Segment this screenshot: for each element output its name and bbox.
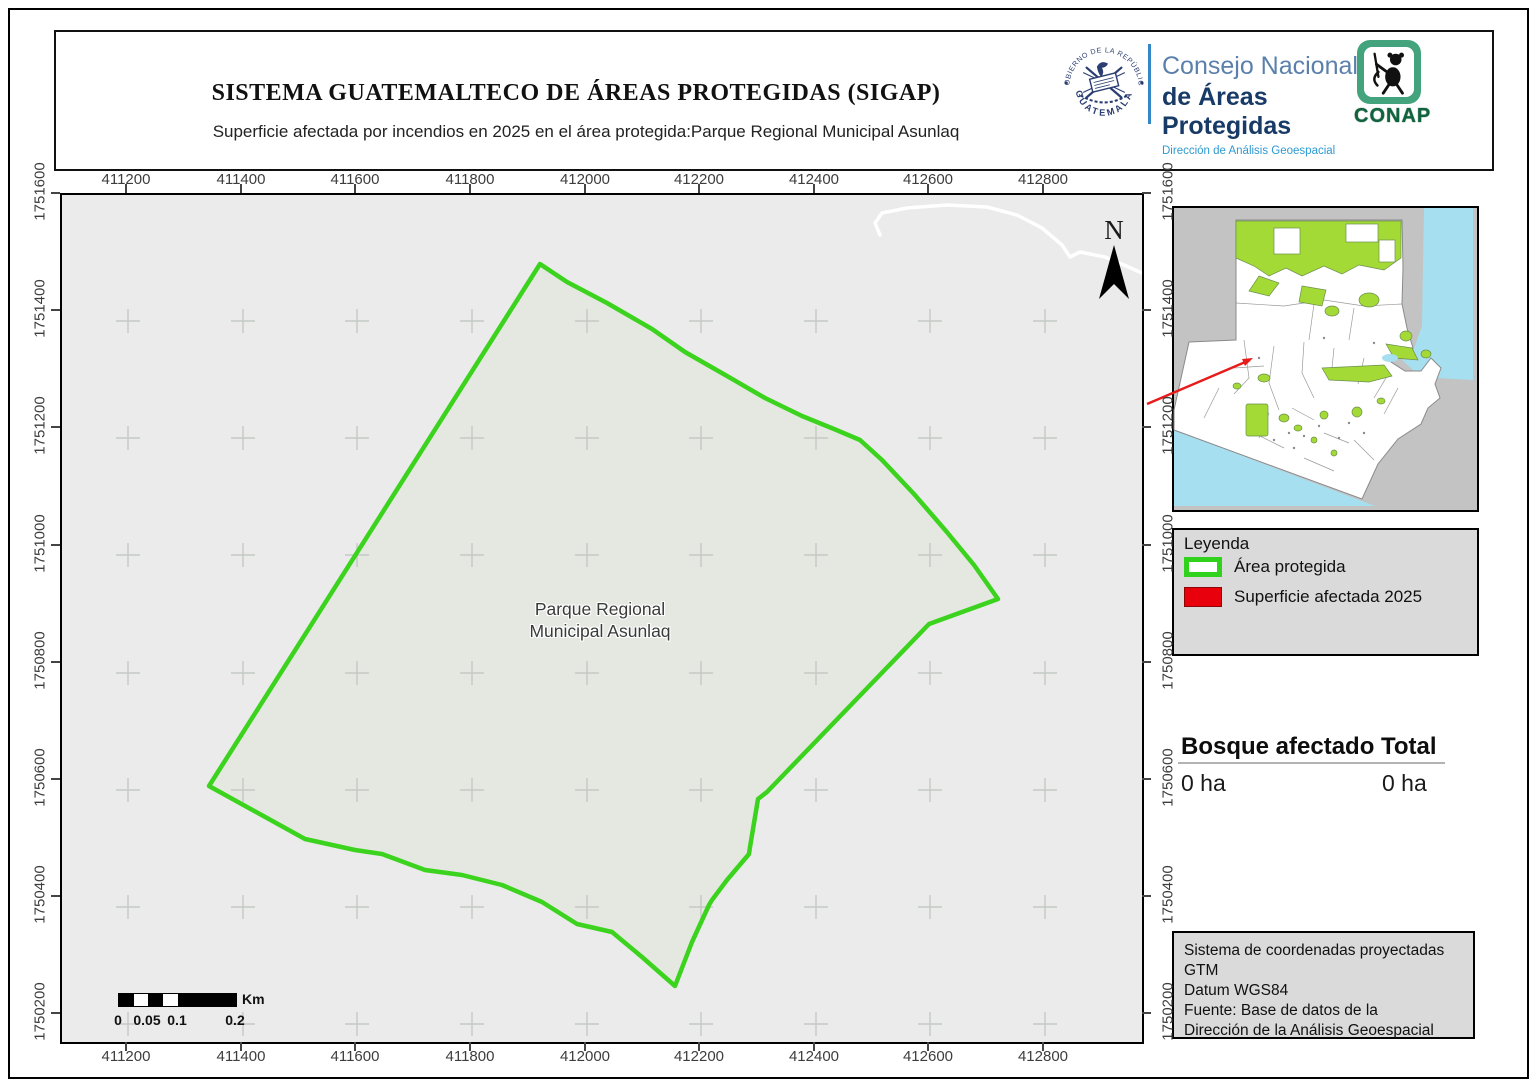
crs-line: GTM (1184, 961, 1463, 981)
page-subtitle: Superficie afectada por incendios en 202… (116, 122, 1056, 142)
overview-map-canvas (1174, 208, 1473, 506)
y-axis-label-left: 1750600 (32, 733, 49, 823)
axis-tick (1142, 1012, 1151, 1014)
conap-direction-line: Dirección de Análisis Geoespacial (1162, 145, 1382, 157)
scale-bar-unit: Km (242, 991, 265, 1007)
axis-tick (584, 184, 586, 193)
y-axis-label-right: 1751200 (1160, 381, 1177, 471)
stats-divider (1178, 762, 1445, 764)
y-axis-label-left: 1750800 (32, 616, 49, 706)
axis-tick (354, 1042, 356, 1051)
axis-tick (1142, 895, 1151, 897)
y-axis-label-right: 1750800 (1160, 616, 1177, 706)
y-axis-label-left: 1751200 (32, 381, 49, 471)
axis-tick (584, 1042, 586, 1051)
axis-tick (51, 661, 60, 663)
axis-tick (1142, 778, 1151, 780)
government-seal-icon: GOBIERNO DE LA REPÚBLICA GUATEMALA (1058, 36, 1150, 128)
stats-value-total: 0 ha (1382, 770, 1427, 797)
crs-line: Sistema de coordenadas proyectadas (1184, 941, 1463, 961)
axis-tick (698, 184, 700, 193)
conap-logo-text: CONAP (1354, 105, 1424, 128)
lake-izabal (1382, 354, 1398, 362)
y-axis-label-left: 1750200 (32, 967, 49, 1057)
axis-tick (125, 184, 127, 193)
scale-bar-label: 0.1 (157, 1012, 197, 1028)
stream-line (875, 205, 1142, 273)
conap-name-line1: Consejo Nacional (1162, 52, 1382, 81)
axis-tick (813, 1042, 815, 1051)
axis-tick (354, 184, 356, 193)
page-title: SISTEMA GUATEMALTECO DE ÁREAS PROTEGIDAS… (116, 80, 1036, 107)
scale-bar-label: 0.2 (215, 1012, 255, 1028)
north-label: N (1104, 215, 1124, 245)
axis-tick (240, 1042, 242, 1051)
crs-line: Dirección de la Análisis Geoespacial (1184, 1021, 1463, 1041)
conap-monkey-icon (1357, 40, 1421, 104)
axis-tick (51, 192, 60, 194)
y-axis-label-right: 1751600 (1160, 147, 1177, 237)
legend-label: Superficie afectada 2025 (1234, 587, 1422, 607)
y-axis-label-right: 1750600 (1160, 733, 1177, 823)
y-axis-label-right: 1750200 (1160, 967, 1177, 1057)
axis-tick (1142, 192, 1151, 194)
axis-tick (927, 1042, 929, 1051)
svg-text:GUATEMALA: GUATEMALA (1073, 89, 1134, 118)
conap-name-line2: de Áreas Protegidas (1162, 83, 1382, 141)
y-axis-label-left: 1751000 (32, 499, 49, 589)
overview-map (1172, 206, 1479, 512)
axis-tick (51, 309, 60, 311)
legend-swatch-protected (1184, 557, 1222, 577)
axis-tick (1142, 661, 1151, 663)
legend-box: Leyenda Área protegida Superficie afecta… (1172, 528, 1479, 656)
stats-value-bosque: 0 ha (1181, 770, 1226, 797)
map-report-page: SISTEMA GUATEMALTECO DE ÁREAS PROTEGIDAS… (0, 0, 1536, 1086)
y-axis-label-right: 1751400 (1160, 264, 1177, 354)
axis-tick (1042, 1042, 1044, 1051)
axis-tick (813, 184, 815, 193)
axis-tick (1142, 544, 1151, 546)
stats-header-total: Total (1381, 733, 1437, 761)
area-label: Parque Regional Municipal Asunlaq (500, 598, 700, 642)
y-axis-label-left: 1751600 (32, 147, 49, 237)
axis-tick (927, 184, 929, 193)
axis-tick (469, 1042, 471, 1051)
stats-header-bosque: Bosque afectado (1181, 733, 1374, 761)
crs-line: Fuente: Base de datos de la (1184, 1001, 1463, 1021)
conap-logo: CONAP (1354, 40, 1424, 128)
axis-tick (698, 1042, 700, 1051)
crs-line: Datum WGS84 (1184, 981, 1463, 1001)
axis-tick (51, 778, 60, 780)
axis-tick (1142, 426, 1151, 428)
y-axis-label-right: 1750400 (1160, 850, 1177, 940)
legend-title: Leyenda (1184, 534, 1249, 554)
y-axis-label-left: 1750400 (32, 850, 49, 940)
axis-tick (51, 426, 60, 428)
y-axis-label-right: 1751000 (1160, 499, 1177, 589)
scale-bar (118, 993, 237, 1007)
y-axis-label-left: 1751400 (32, 264, 49, 354)
axis-tick (51, 1012, 60, 1014)
north-arrow-icon (1099, 245, 1129, 299)
legend-swatch-affected (1184, 587, 1222, 607)
axis-tick (51, 544, 60, 546)
axis-tick (1042, 184, 1044, 193)
axis-tick (1142, 309, 1151, 311)
crs-info-box: Sistema de coordenadas proyectadas GTM D… (1172, 931, 1475, 1039)
axis-tick (469, 184, 471, 193)
axis-tick (51, 895, 60, 897)
axis-tick (240, 184, 242, 193)
legend-label: Área protegida (1234, 557, 1346, 577)
conap-wordmark: Consejo Nacional de Áreas Protegidas Dir… (1162, 52, 1382, 157)
axis-tick (125, 1042, 127, 1051)
logo-divider (1148, 44, 1151, 124)
